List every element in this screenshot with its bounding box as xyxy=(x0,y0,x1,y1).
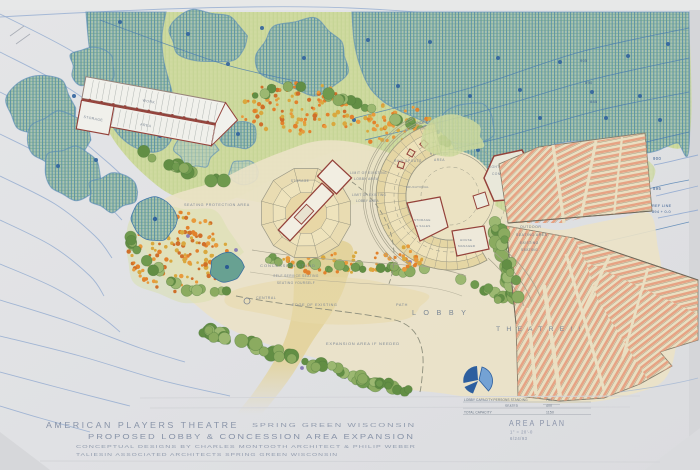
svg-text:HOUSE: HOUSE xyxy=(460,238,472,242)
svg-text:894 + 0-0: 894 + 0-0 xyxy=(652,210,671,214)
svg-text:CONCEPTUAL DESIGNS BY CHARLES: CONCEPTUAL DESIGNS BY CHARLES MONTOOTH A… xyxy=(76,444,416,450)
svg-text:REF LINE: REF LINE xyxy=(652,204,672,208)
svg-text:CENTRAL: CENTRAL xyxy=(256,296,276,300)
svg-text:EDGE OF EXISTING: EDGE OF EXISTING xyxy=(292,303,337,307)
svg-text:AMERICAN PLAYERS THEATRE: AMERICAN PLAYERS THEATRE xyxy=(46,420,239,430)
svg-text:LIMIT OF EXISTING: LIMIT OF EXISTING xyxy=(350,171,387,175)
svg-text:T H E A T R E ! !: T H E A T R E ! ! xyxy=(496,326,583,333)
svg-text:1" = 20'-0: 1" = 20'-0 xyxy=(510,430,533,435)
svg-text:SEATING PROTECTION AREA: SEATING PROTECTION AREA xyxy=(184,203,250,207)
svg-text:905: 905 xyxy=(580,58,588,63)
svg-text:PROPOSED LOBBY & CONCESSIO: PROPOSED LOBBY & CONCESSION AREA EXPANSI… xyxy=(88,432,415,441)
svg-text:890: 890 xyxy=(585,80,593,85)
svg-text:750: 750 xyxy=(546,398,552,402)
svg-text:SPRING GREEN WISCONSIN: SPRING GREEN WISCONSIN xyxy=(252,423,416,429)
svg-text:SEATING YOURSELF: SEATING YOURSELF xyxy=(277,281,315,285)
svg-text:CONCESSION STAND: CONCESSION STAND xyxy=(260,263,316,268)
svg-text:MANAGER: MANAGER xyxy=(458,244,476,248)
svg-text:STORAGE: STORAGE xyxy=(291,179,309,183)
svg-text:6/24/93: 6/24/93 xyxy=(510,436,528,441)
svg-text:EXISTING: EXISTING xyxy=(520,241,539,245)
svg-text:900: 900 xyxy=(653,156,661,161)
svg-text:LIMIT OF EXISTING: LIMIT OF EXISTING xyxy=(352,193,386,197)
svg-text:LOBBY AREA: LOBBY AREA xyxy=(356,199,380,203)
svg-text:LOBBY CAPACITY:PERSONS STANDIN: LOBBY CAPACITY:PERSONS STANDING xyxy=(464,398,528,402)
svg-text:EXPANSION AREA IF NEEDED: EXPANSION AREA IF NEEDED xyxy=(326,341,400,346)
svg-text:TALIESIN ASSOCIATED ARCHITECTS: TALIESIN ASSOCIATED ARCHITECTS SPRING GR… xyxy=(76,452,338,458)
svg-text:RAIN SPOUTS: RAIN SPOUTS xyxy=(394,159,422,163)
svg-text:885: 885 xyxy=(590,99,598,104)
svg-text:SEATING AREA: SEATING AREA xyxy=(516,233,548,237)
svg-text:895: 895 xyxy=(653,186,661,191)
svg-text:1150: 1150 xyxy=(546,411,554,415)
svg-text:L O B B Y: L O B B Y xyxy=(412,308,469,317)
svg-text:LOBBY AREA: LOBBY AREA xyxy=(354,177,379,181)
svg-text:EDUCATIONAL: EDUCATIONAL xyxy=(406,185,429,189)
svg-text:& SALES: & SALES xyxy=(416,224,431,228)
svg-text:SELF SERVICE SEATING: SELF SERVICE SEATING xyxy=(273,274,319,278)
svg-text:AREA: AREA xyxy=(434,158,445,162)
svg-text:TOTAL CAPACITY: TOTAL CAPACITY xyxy=(464,411,493,415)
svg-text:AREA PLAN: AREA PLAN xyxy=(509,419,566,428)
svg-text:PATH: PATH xyxy=(396,303,408,307)
svg-text:SEATING: SEATING xyxy=(521,248,538,252)
svg-text:STORAGE: STORAGE xyxy=(414,218,431,222)
svg-text:OUTDOOR: OUTDOOR xyxy=(520,225,541,229)
